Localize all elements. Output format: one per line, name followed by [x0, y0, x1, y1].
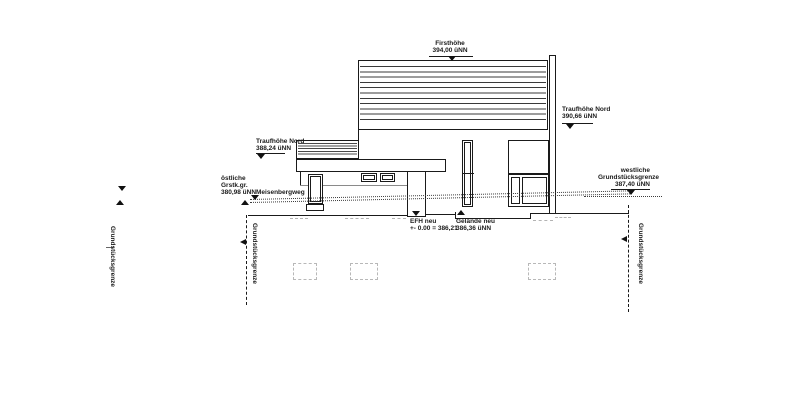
- traufhoehe-left-name: Traufhöhe Nord: [256, 138, 304, 145]
- ground-tick-5: [555, 217, 571, 218]
- ground-tick-2: [345, 218, 369, 219]
- left-window-sill: [306, 204, 324, 211]
- firsthoehe-name: Firsthöhe: [424, 40, 476, 47]
- tall-window-divider: [463, 173, 474, 174]
- efh-marker-icon: [412, 211, 420, 216]
- gelaende-marker-icon: [457, 210, 465, 215]
- boundary-mid-label: Grundstücksgrenze: [250, 223, 258, 284]
- small-window-2: [380, 173, 395, 182]
- underground-box-1: [293, 263, 317, 280]
- street-label: Meisenbergweg: [256, 189, 305, 196]
- firsthoehe-value: 394,00 üNN: [424, 47, 476, 54]
- traufhoehe-right-label: Traufhöhe Nord 390,66 üNN: [562, 106, 610, 120]
- ground-line-2: [426, 214, 455, 215]
- right-window: [508, 174, 549, 207]
- west-boundary-line2: Grundstücksgrenze: [598, 174, 650, 181]
- traufhoehe-right-value: 390,66 üNN: [562, 113, 610, 120]
- right-window-sash-right: [522, 177, 547, 204]
- left-margin-marker-up-icon: [116, 200, 124, 205]
- gelaende-line1: Gelände neu: [456, 218, 495, 225]
- east-boundary-label: östliche Grstk.gr. 380,98 üNN: [221, 175, 256, 196]
- canopy-slab: [296, 159, 446, 172]
- right-window-sash-left: [511, 177, 520, 204]
- gelaende-label: Gelände neu 386,36 üNN: [456, 218, 495, 232]
- ground-line-1: [248, 215, 407, 216]
- mid-boundary-marker-icon: [240, 239, 246, 245]
- right-boundary-marker-icon: [621, 236, 627, 242]
- underground-box-2: [350, 263, 378, 280]
- right-wall-fin: [549, 55, 556, 214]
- west-boundary-line3: 387,40 üNN: [598, 181, 650, 188]
- west-boundary-marker-icon: [627, 190, 635, 195]
- boundary-left-margin-label: Grundstücksgrenze: [108, 226, 116, 287]
- ground-tick-3: [392, 218, 406, 219]
- boundary-right-label: Grundstücksgrenze: [636, 223, 644, 284]
- traufhoehe-left-marker-icon: [257, 154, 265, 159]
- property-boundary-line-left: [246, 215, 247, 305]
- traufhoehe-right-name: Traufhöhe Nord: [562, 106, 610, 113]
- traufhoehe-left-value: 388,24 üNN: [256, 145, 304, 152]
- cladding-stripes-small: [298, 143, 357, 156]
- small-window-1: [361, 173, 377, 182]
- small-window-1-frame: [363, 175, 375, 180]
- east-boundary-line2: Grstk.gr.: [221, 182, 256, 189]
- west-boundary-label: westliche Grundstücksgrenze 387,40 üNN: [598, 167, 650, 188]
- efh-label: EFH neu +- 0.00 = 386,21: [410, 218, 458, 232]
- property-boundary-line-right: [628, 205, 629, 312]
- traufhoehe-right-marker-icon: [566, 124, 574, 129]
- ground-tick-4: [533, 220, 553, 221]
- east-boundary-marker-up-icon: [241, 200, 249, 205]
- right-wall-panel: [508, 140, 549, 174]
- building-upper-volume: [358, 60, 548, 130]
- left-striped-band: [296, 140, 359, 159]
- east-boundary-marker-down-icon: [251, 195, 259, 200]
- terrain-line-west: [584, 196, 662, 197]
- left-margin-marker-down-icon: [118, 186, 126, 191]
- efh-line2: +- 0.00 = 386,21: [410, 225, 458, 232]
- wall-edge-left: [300, 172, 301, 185]
- east-boundary-line1: östliche: [221, 175, 256, 182]
- underground-box-3: [528, 263, 556, 280]
- firsthoehe-marker-icon: [448, 56, 456, 61]
- ground-tick-1: [290, 218, 308, 219]
- firsthoehe-label: Firsthöhe 394,00 üNN: [424, 40, 476, 54]
- west-boundary-line1: westliche: [598, 167, 650, 174]
- gelaende-line2: 386,36 üNN: [456, 225, 495, 232]
- street-name: Meisenbergweg: [256, 189, 305, 196]
- ground-line-4: [530, 213, 629, 214]
- small-window-2-frame: [382, 175, 393, 180]
- efh-line1: EFH neu: [410, 218, 458, 225]
- elevation-drawing: Firsthöhe 394,00 üNN Traufhöhe Nord 390,…: [0, 0, 800, 400]
- traufhoehe-left-label: Traufhöhe Nord 388,24 üNN: [256, 138, 304, 152]
- cladding-stripes: [360, 66, 546, 124]
